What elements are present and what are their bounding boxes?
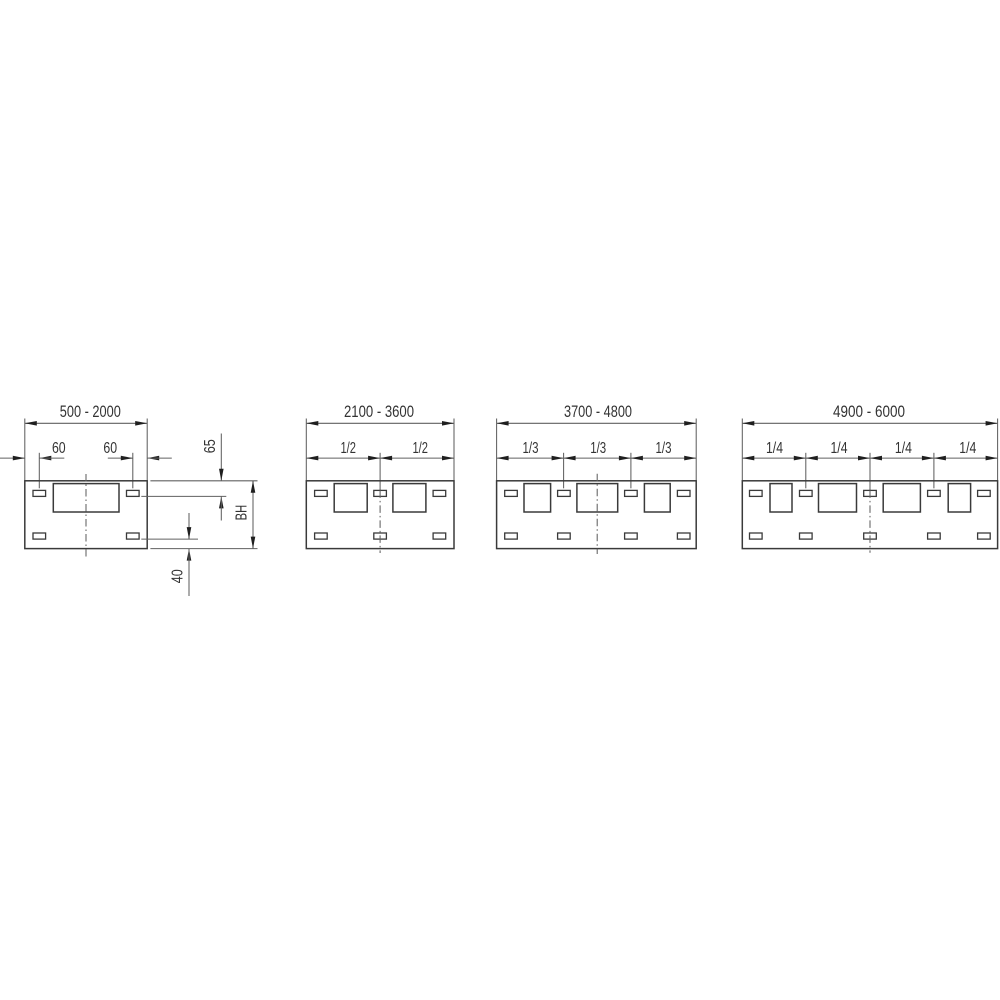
svg-text:500 - 2000: 500 - 2000 — [60, 403, 121, 421]
svg-text:65: 65 — [202, 439, 219, 453]
svg-text:4900 - 6000: 4900 - 6000 — [833, 403, 905, 421]
svg-text:1/4: 1/4 — [766, 440, 783, 457]
svg-text:1/3: 1/3 — [590, 440, 606, 457]
svg-text:1/3: 1/3 — [656, 440, 672, 457]
svg-text:1/4: 1/4 — [831, 440, 848, 457]
svg-text:60: 60 — [103, 440, 117, 457]
svg-text:1/4: 1/4 — [895, 440, 912, 457]
svg-text:1/2: 1/2 — [412, 440, 428, 457]
svg-text:1/2: 1/2 — [340, 440, 356, 457]
svg-text:2100 - 3600: 2100 - 3600 — [344, 403, 414, 421]
svg-text:1/3: 1/3 — [523, 440, 539, 457]
svg-text:60: 60 — [52, 440, 66, 457]
svg-text:3700 - 4800: 3700 - 4800 — [564, 403, 632, 421]
svg-text:40: 40 — [170, 569, 187, 583]
svg-text:BH: BH — [234, 505, 251, 521]
svg-text:1/4: 1/4 — [959, 440, 976, 457]
